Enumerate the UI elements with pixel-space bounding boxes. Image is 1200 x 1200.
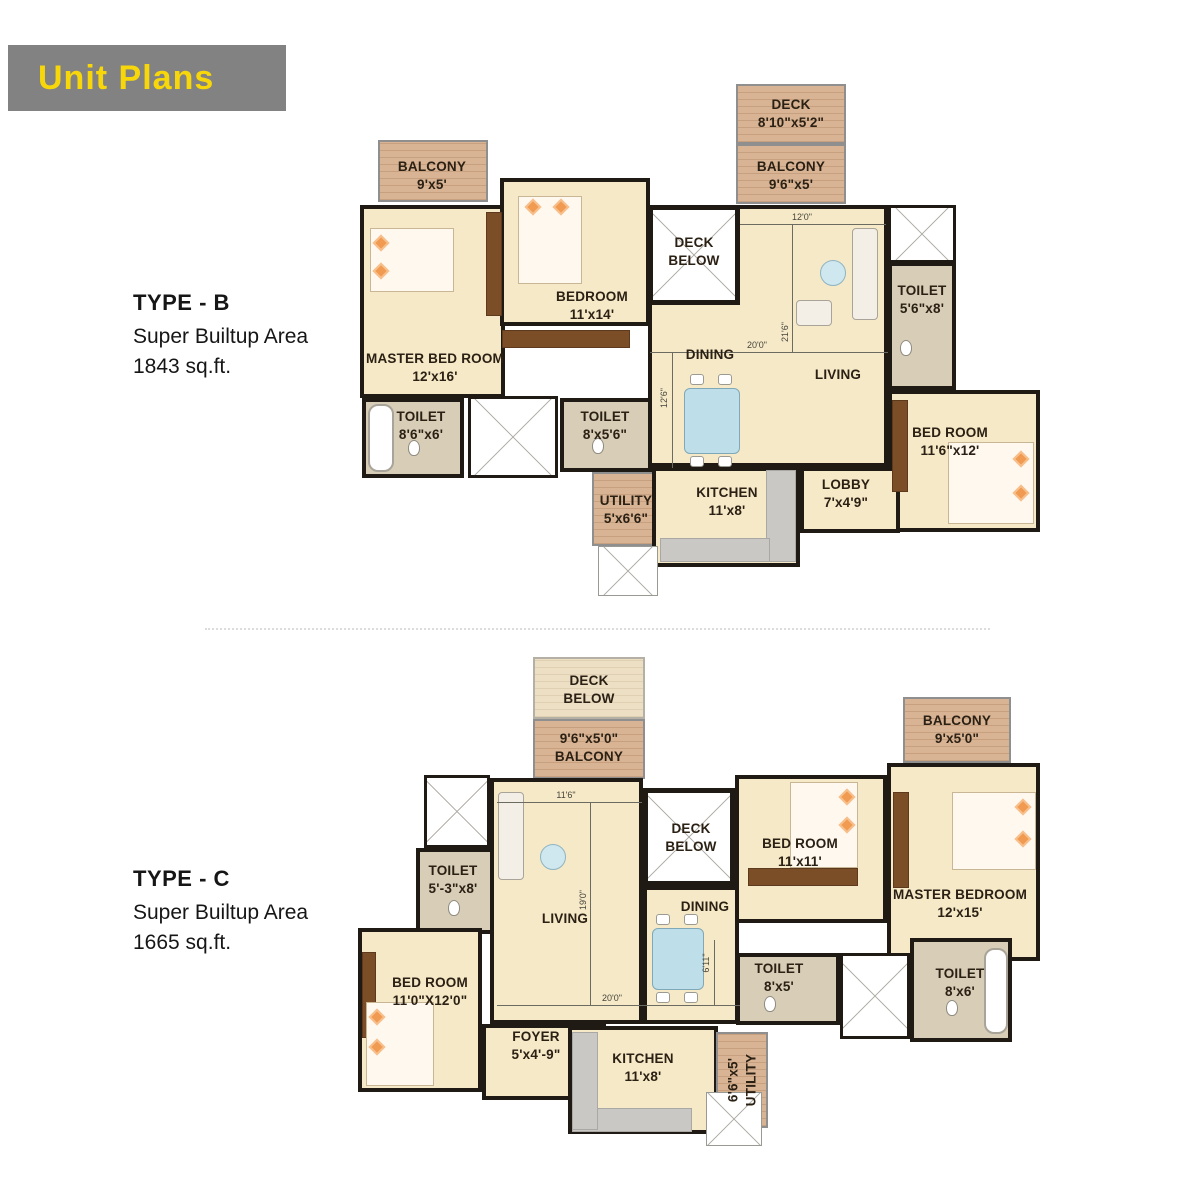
pillow: [369, 1039, 386, 1056]
room-dim: 5'x6'6": [600, 510, 652, 528]
label-c-utility: 6'6"x5' UTILITY: [724, 1054, 759, 1106]
armchair: [796, 300, 832, 326]
room-dim: 11'x8': [612, 1068, 673, 1086]
room-dim: 11'6"x12': [912, 442, 988, 460]
label-c-bedroom-bottom-left: BED ROOM 11'0"X12'0": [392, 974, 468, 1009]
page-title-banner: Unit Plans: [8, 45, 286, 111]
wardrobe: [748, 868, 858, 886]
dimension-label: 12'6": [659, 388, 669, 408]
type-c-subtitle: Super Builtup Area: [133, 898, 308, 928]
page-title: Unit Plans: [38, 59, 214, 98]
coffee-table: [820, 260, 846, 286]
room-name: BED ROOM: [762, 835, 838, 853]
bathtub: [368, 404, 394, 472]
pillow: [553, 199, 570, 216]
label-b-bedroom-right: BED ROOM 11'6"x12': [912, 424, 988, 459]
room-name: DECK BELOW: [554, 672, 624, 707]
bed: [366, 1002, 434, 1086]
label-b-toilet-right: TOILET 5'6"x8': [898, 282, 947, 317]
bathtub: [984, 948, 1008, 1034]
room-name: KITCHEN: [696, 484, 757, 502]
label-c-deck-below-mid: DECK BELOW: [656, 820, 726, 855]
label-c-dining: DINING: [681, 898, 729, 916]
room-dim: 9'x5'0": [923, 730, 991, 748]
label-c-toilet-bottom-2: TOILET 8'x6': [936, 965, 985, 1000]
room-name: TOILET: [755, 960, 804, 978]
dimension-label: 12'0": [792, 212, 812, 222]
room-name: BEDROOM: [556, 288, 628, 306]
chair: [656, 914, 670, 925]
dimension-label: 19'0": [578, 890, 588, 910]
room-dim: 12'x16': [366, 368, 504, 386]
pillow: [1013, 451, 1030, 468]
room-dim: 11'x14': [556, 306, 628, 324]
bed: [370, 228, 454, 292]
toilet-fixture: [900, 340, 912, 356]
room-name: DINING: [681, 898, 729, 916]
sofa: [852, 228, 878, 320]
room-name: DINING: [686, 346, 734, 364]
room-dim: 8'x5'6": [581, 426, 630, 444]
label-b-deck-below: DECK BELOW: [659, 234, 729, 269]
chair: [684, 992, 698, 1003]
room-name: BED ROOM: [912, 424, 988, 442]
label-b-kitchen: KITCHEN 11'x8': [696, 484, 757, 519]
coffee-table: [540, 844, 566, 870]
type-b-subtitle: Super Builtup Area: [133, 322, 308, 352]
wardrobe: [892, 400, 908, 492]
room-name: DECK BELOW: [659, 234, 729, 269]
dimension-label: 20'0": [602, 993, 622, 1003]
label-b-bedroom: BEDROOM 11'x14': [556, 288, 628, 323]
type-b-area: 1843 sq.ft.: [133, 352, 308, 382]
label-c-deck-below-top: DECK BELOW: [554, 672, 624, 707]
room-dim: 8'x5': [755, 978, 804, 996]
room-dim: 5'x4'-9": [512, 1046, 561, 1064]
room-name: TOILET: [397, 408, 446, 426]
room-dim: 12'x15': [893, 904, 1027, 922]
dimension-line: [497, 802, 642, 803]
pillow: [1015, 831, 1032, 848]
pillow: [369, 1009, 386, 1026]
wardrobe: [893, 792, 909, 888]
wardrobe: [486, 212, 502, 316]
chair: [718, 374, 732, 385]
chair: [690, 374, 704, 385]
plans-separator: [205, 628, 990, 630]
label-b-toilet-middle: TOILET 8'x5'6": [581, 408, 630, 443]
wardrobe: [502, 330, 630, 348]
label-c-toilet-top-left: TOILET 5'-3"x8': [429, 862, 478, 897]
pillow: [839, 817, 856, 834]
bed: [952, 792, 1036, 870]
dining-table: [652, 928, 704, 990]
room-name: BALCONY: [757, 158, 825, 176]
room-name: FOYER: [512, 1028, 561, 1046]
pillow: [839, 789, 856, 806]
b-service-shaft-bottom: [598, 546, 658, 596]
room-name: LIVING: [542, 910, 588, 928]
pillow: [1013, 485, 1030, 502]
dimension-label: 21'6": [780, 322, 790, 342]
pillow: [525, 199, 542, 216]
room-dim: 9'6"x5'0": [555, 730, 623, 748]
pillow: [373, 263, 390, 280]
dimension-label: 20'0": [747, 340, 767, 350]
room-name: BALCONY: [923, 712, 991, 730]
room-dim: 8'6"x6': [397, 426, 446, 444]
room-name: BALCONY: [555, 748, 623, 766]
pillow: [373, 235, 390, 252]
room-dim: 9'x5': [398, 176, 466, 194]
room-name: UTILITY: [600, 492, 652, 510]
dimension-line: [590, 802, 591, 1005]
pillow: [1015, 799, 1032, 816]
sofa: [498, 792, 524, 880]
room-name: TOILET: [581, 408, 630, 426]
room-dim: 11'x8': [696, 502, 757, 520]
label-b-dining: DINING: [686, 346, 734, 364]
dimension-line: [714, 940, 715, 1005]
label-c-foyer: FOYER 5'x4'-9": [512, 1028, 561, 1063]
chair: [718, 456, 732, 467]
room-name: BED ROOM: [392, 974, 468, 992]
label-c-kitchen: KITCHEN 11'x8': [612, 1050, 673, 1085]
c-lift-shaft: [840, 953, 910, 1039]
chair: [690, 456, 704, 467]
type-c-area: 1665 sq.ft.: [133, 928, 308, 958]
b-service-shaft-top: [888, 205, 956, 263]
dimension-label: 11'6": [556, 790, 575, 800]
room-name: UTILITY: [742, 1054, 760, 1106]
room-name: KITCHEN: [612, 1050, 673, 1068]
room-name: MASTER BED ROOM: [366, 350, 504, 368]
room-dim: 8'10"x5'2": [758, 114, 824, 132]
room-dim: 5'-3"x8': [429, 880, 478, 898]
unit-plans-page: Unit Plans TYPE - B Super Builtup Area 1…: [0, 0, 1200, 1200]
label-c-living: LIVING: [542, 910, 588, 928]
dimension-line: [672, 352, 673, 468]
label-b-toilet-left: TOILET 8'6"x6': [397, 408, 446, 443]
type-b-info: TYPE - B Super Builtup Area 1843 sq.ft.: [133, 290, 308, 382]
chair: [684, 914, 698, 925]
room-name: BALCONY: [398, 158, 466, 176]
room-name: MASTER BEDROOM: [893, 886, 1027, 904]
chair: [656, 992, 670, 1003]
room-dim: 11'0"X12'0": [392, 992, 468, 1010]
toilet-fixture: [764, 996, 776, 1012]
room-name: TOILET: [898, 282, 947, 300]
c-service-shaft-top: [424, 775, 490, 848]
dimension-line: [792, 224, 793, 352]
room-name: TOILET: [936, 965, 985, 983]
label-b-lobby: LOBBY 7'x4'9": [822, 476, 870, 511]
kitchen-counter: [660, 538, 770, 562]
label-c-toilet-bottom-1: TOILET 8'x5': [755, 960, 804, 995]
label-c-balcony-top-right: BALCONY 9'x5'0": [923, 712, 991, 747]
label-c-bedroom-middle: BED ROOM 11'x11': [762, 835, 838, 870]
room-name: TOILET: [429, 862, 478, 880]
type-b-title: TYPE - B: [133, 290, 308, 316]
dimension-label: 6'11": [701, 953, 711, 972]
room-dim: 11'x11': [762, 853, 838, 871]
room-name: DECK BELOW: [656, 820, 726, 855]
toilet-fixture: [946, 1000, 958, 1016]
room-dim: 8'x6': [936, 983, 985, 1001]
type-c-title: TYPE - C: [133, 866, 308, 892]
toilet-fixture: [448, 900, 460, 916]
dimension-line: [497, 1005, 740, 1006]
label-b-utility: UTILITY 5'x6'6": [600, 492, 652, 527]
room-name: LOBBY: [822, 476, 870, 494]
label-b-master: MASTER BED ROOM 12'x16': [366, 350, 504, 385]
label-b-balcony-top-left: BALCONY 9'x5': [398, 158, 466, 193]
label-b-deck: DECK 8'10"x5'2": [758, 96, 824, 131]
room-name: LIVING: [815, 366, 861, 384]
room-dim: 5'6"x8': [898, 300, 947, 318]
dining-table: [684, 388, 740, 454]
label-c-master: MASTER BEDROOM 12'x15': [893, 886, 1027, 921]
label-b-living: LIVING: [815, 366, 861, 384]
dimension-line: [740, 224, 886, 225]
type-c-info: TYPE - C Super Builtup Area 1665 sq.ft.: [133, 866, 308, 958]
label-c-balcony-top: 9'6"x5'0" BALCONY: [555, 730, 623, 765]
bed: [518, 196, 582, 284]
room-dim: 9'6"x5': [757, 176, 825, 194]
b-lift-shaft: [468, 396, 558, 478]
room-dim: 7'x4'9": [822, 494, 870, 512]
kitchen-counter: [572, 1032, 598, 1130]
room-name: DECK: [758, 96, 824, 114]
label-b-balcony-top-right: BALCONY 9'6"x5': [757, 158, 825, 193]
kitchen-counter: [766, 470, 796, 562]
room-dim: 6'6"x5': [724, 1054, 742, 1106]
